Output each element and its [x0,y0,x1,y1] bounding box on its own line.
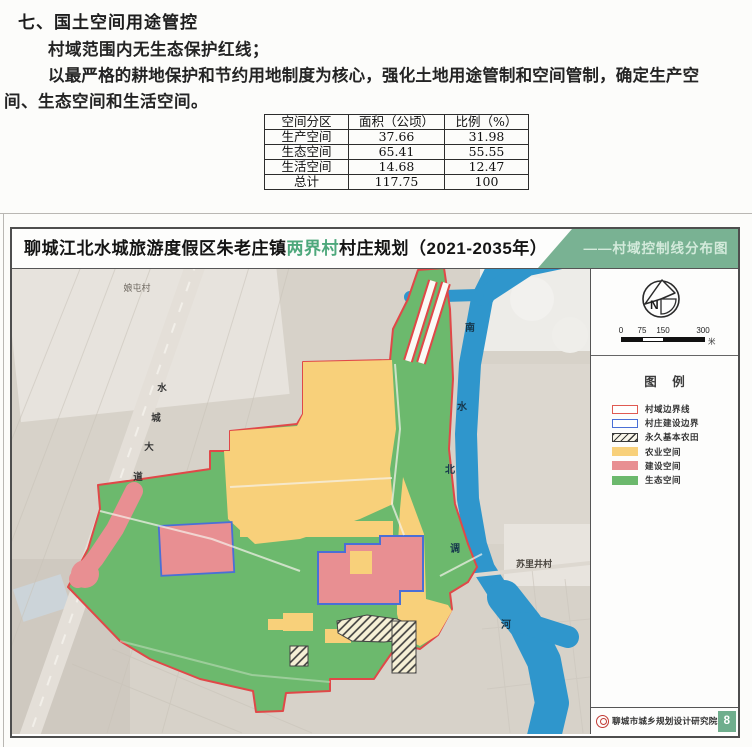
svg-text:南: 南 [465,321,475,334]
scale-unit: 米 [708,336,716,347]
legend-label: 村庄建设边界 [645,417,699,429]
cell: 31.98 [445,130,529,145]
scale-tick: 150 [656,326,669,335]
legend-title: 图 例 [591,371,738,390]
title-village-name: 两界村 [287,239,340,258]
cell: 100 [445,175,529,190]
cell: 37.66 [349,130,445,145]
planning-map: 娘屯村 水 城 大 道 南 水 北 调 河 苏里井村 [12,269,590,734]
col-header: 面积（公顷） [349,115,445,130]
cell: 生产空间 [265,130,349,145]
svg-text:水: 水 [456,400,468,413]
cell: 总计 [265,175,349,190]
map-panel: 聊城江北水城旅游度假区朱老庄镇两界村村庄规划（2021-2035年） ——村域控… [10,227,740,738]
institute-name: 聊城市城乡规划设计研究院 [612,715,718,727]
cell: 65.41 [349,145,445,160]
doc-paragraph-line: 村域范围内无生态保护红线； [48,36,269,60]
yellow-swatch-icon [612,447,638,456]
legend-label: 村域边界线 [645,403,690,415]
attribution-bar: 聊城市城乡规划设计研究院 8 [591,707,738,734]
scale-bar-segments [621,337,705,342]
legend-item-construction: 建设空间 [612,459,738,473]
map-title: 聊城江北水城旅游度假区朱老庄镇两界村村庄规划（2021-2035年） [24,229,547,268]
title-part: 聊城江北水城旅游度假区朱老庄镇 [24,239,287,258]
scale-bar: 0 75 150 300 米 [591,324,738,354]
cell: 12.47 [445,160,529,175]
legend-item-agriculture: 农业空间 [612,445,738,459]
table-total-row: 总计 117.75 100 [265,175,529,190]
doc-paragraph-line: 以最严格的耕地保护和节约用地制度为核心，强化土地用途管制和空间管制，确定生产空 [48,62,699,86]
divider-line [0,213,752,214]
svg-text:北: 北 [445,463,455,476]
legend-item-construction-boundary: 村庄建设边界 [612,416,738,430]
svg-text:调: 调 [450,542,460,555]
section-heading: 七、国土空间用途管控 [18,8,198,33]
space-zoning-table: 空间分区 面积（公顷） 比例（%） 生产空间 37.66 31.98 生态空间 … [264,114,529,190]
yellow-notch [350,551,372,574]
svg-text:道: 道 [133,471,143,483]
table-row: 生产空间 37.66 31.98 [265,130,529,145]
pink-swatch-icon [612,461,638,470]
boundary-blue-swatch-icon [612,419,638,428]
divider-line [3,213,4,747]
map-title-bar: 聊城江北水城旅游度假区朱老庄镇两界村村庄规划（2021-2035年） ——村域控… [12,229,738,269]
title-part: 村庄规划（2021-2035年） [339,239,547,258]
cell: 生态空间 [265,145,349,160]
village-label-east: 苏里井村 [516,558,552,569]
page-number: 8 [718,711,736,732]
cell: 55.55 [445,145,529,160]
scale-tick: 0 [619,326,623,335]
boundary-red-swatch-icon [612,405,638,414]
hatch-swatch-icon [612,433,638,442]
legend-label: 建设空间 [645,460,681,472]
institute-logo-icon [596,715,609,728]
svg-text:河: 河 [501,619,511,631]
construction-blob-west [71,560,99,588]
map-canvas: 娘屯村 水 城 大 道 南 水 北 调 河 苏里井村 [12,269,590,734]
svg-text:城: 城 [151,412,161,424]
north-arrow-icon: N [631,271,691,323]
village-label-nw: 娘屯村 [123,282,150,293]
col-header: 比例（%） [445,115,529,130]
legend-label: 生态空间 [645,474,681,486]
cell: 14.68 [349,160,445,175]
scale-tick: 300 [696,326,709,335]
construction-block-west [159,522,235,576]
legend-item-village-boundary: 村域边界线 [612,402,738,416]
legend-item-basic-farmland: 永久基本农田 [612,430,738,444]
table-header-row: 空间分区 面积（公顷） 比例（%） [265,115,529,130]
svg-text:水: 水 [157,382,167,394]
compass-scale-section: N 0 75 150 300 米 [591,269,738,356]
table-row: 生活空间 14.68 12.47 [265,160,529,175]
svg-text:大: 大 [144,441,154,453]
panel-body: 娘屯村 水 城 大 道 南 水 北 调 河 苏里井村 [12,269,738,735]
scale-tick: 75 [638,326,647,335]
map-subtitle: ——村域控制线分布图 [580,229,732,269]
legend-section: 图 例 村域边界线 村庄建设边界 永久基本农田 [591,371,738,487]
col-header: 空间分区 [265,115,349,130]
map-sidebar: N 0 75 150 300 米 图 例 [590,269,738,734]
compass-n-label: N [650,298,659,312]
cell: 117.75 [349,175,445,190]
map-subtitle-ribbon: ——村域控制线分布图 [538,229,738,268]
legend-label: 永久基本农田 [645,431,699,443]
legend-item-ecology: 生态空间 [612,473,738,487]
green-swatch-icon [612,476,638,485]
table-row: 生态空间 65.41 55.55 [265,145,529,160]
doc-paragraph-line: 间、生态空间和生活空间。 [4,88,208,112]
legend-label: 农业空间 [645,446,681,458]
cell: 生活空间 [265,160,349,175]
